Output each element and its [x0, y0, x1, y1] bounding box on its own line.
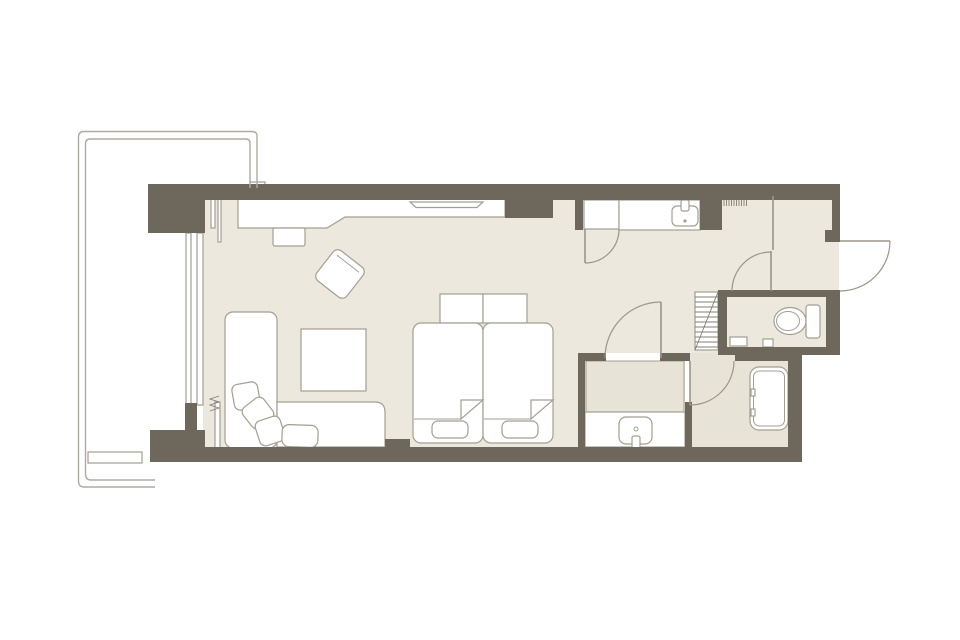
wall-counter-side	[700, 200, 722, 230]
bathtub	[750, 367, 788, 430]
bed-head-cushion-1	[440, 294, 483, 323]
wall-bath-right	[788, 361, 802, 447]
entry-hall-floor	[773, 198, 832, 290]
floor-plan-canvas	[0, 0, 960, 640]
linen-shelf	[695, 292, 718, 350]
wall-corridor-south-2	[660, 353, 690, 361]
closet	[584, 200, 619, 229]
wall-toilet-left	[718, 290, 727, 350]
tv	[410, 202, 483, 208]
toilet-tank	[806, 305, 820, 338]
vanity-sink-faucet	[681, 200, 689, 211]
window-pane-1	[186, 233, 191, 405]
bed-head-cushion-2	[483, 294, 527, 323]
bed-foot-pillow-2	[502, 421, 538, 438]
entry-door-nook-floor	[832, 242, 839, 290]
window-pane-2	[197, 233, 203, 405]
entry-door	[840, 241, 890, 291]
toilet-room-step	[730, 337, 747, 346]
bathtub-fitting-1	[751, 389, 755, 396]
wall-hall-toilet	[718, 290, 840, 297]
balcony-divider-panel	[88, 452, 142, 463]
coffee-table	[301, 329, 366, 391]
wall-entry-step	[825, 230, 840, 242]
floor-plan-drawing	[0, 0, 960, 640]
desk-stool	[273, 228, 305, 246]
wall-bath-top	[735, 353, 802, 361]
cushion-4	[282, 424, 319, 447]
wall-washroom-bath-divider	[685, 402, 692, 447]
bathtub-fitting-2	[751, 409, 755, 416]
vanity-sink-drain	[683, 219, 686, 222]
wall-top	[192, 184, 840, 200]
wall-bottom-step	[385, 439, 410, 449]
wall-closet-side	[575, 200, 583, 230]
wall-left-stub	[185, 403, 197, 445]
curtain-rail-1	[211, 198, 215, 228]
wall-tv-nook	[505, 200, 553, 218]
toilet-paper-holder	[763, 339, 773, 347]
wall-bottom	[203, 447, 802, 462]
curtain-rail-2	[218, 198, 221, 242]
bed-foot-pillow-1	[432, 421, 468, 438]
wall-washroom-left	[578, 353, 585, 447]
wall-right-lower	[826, 290, 840, 355]
